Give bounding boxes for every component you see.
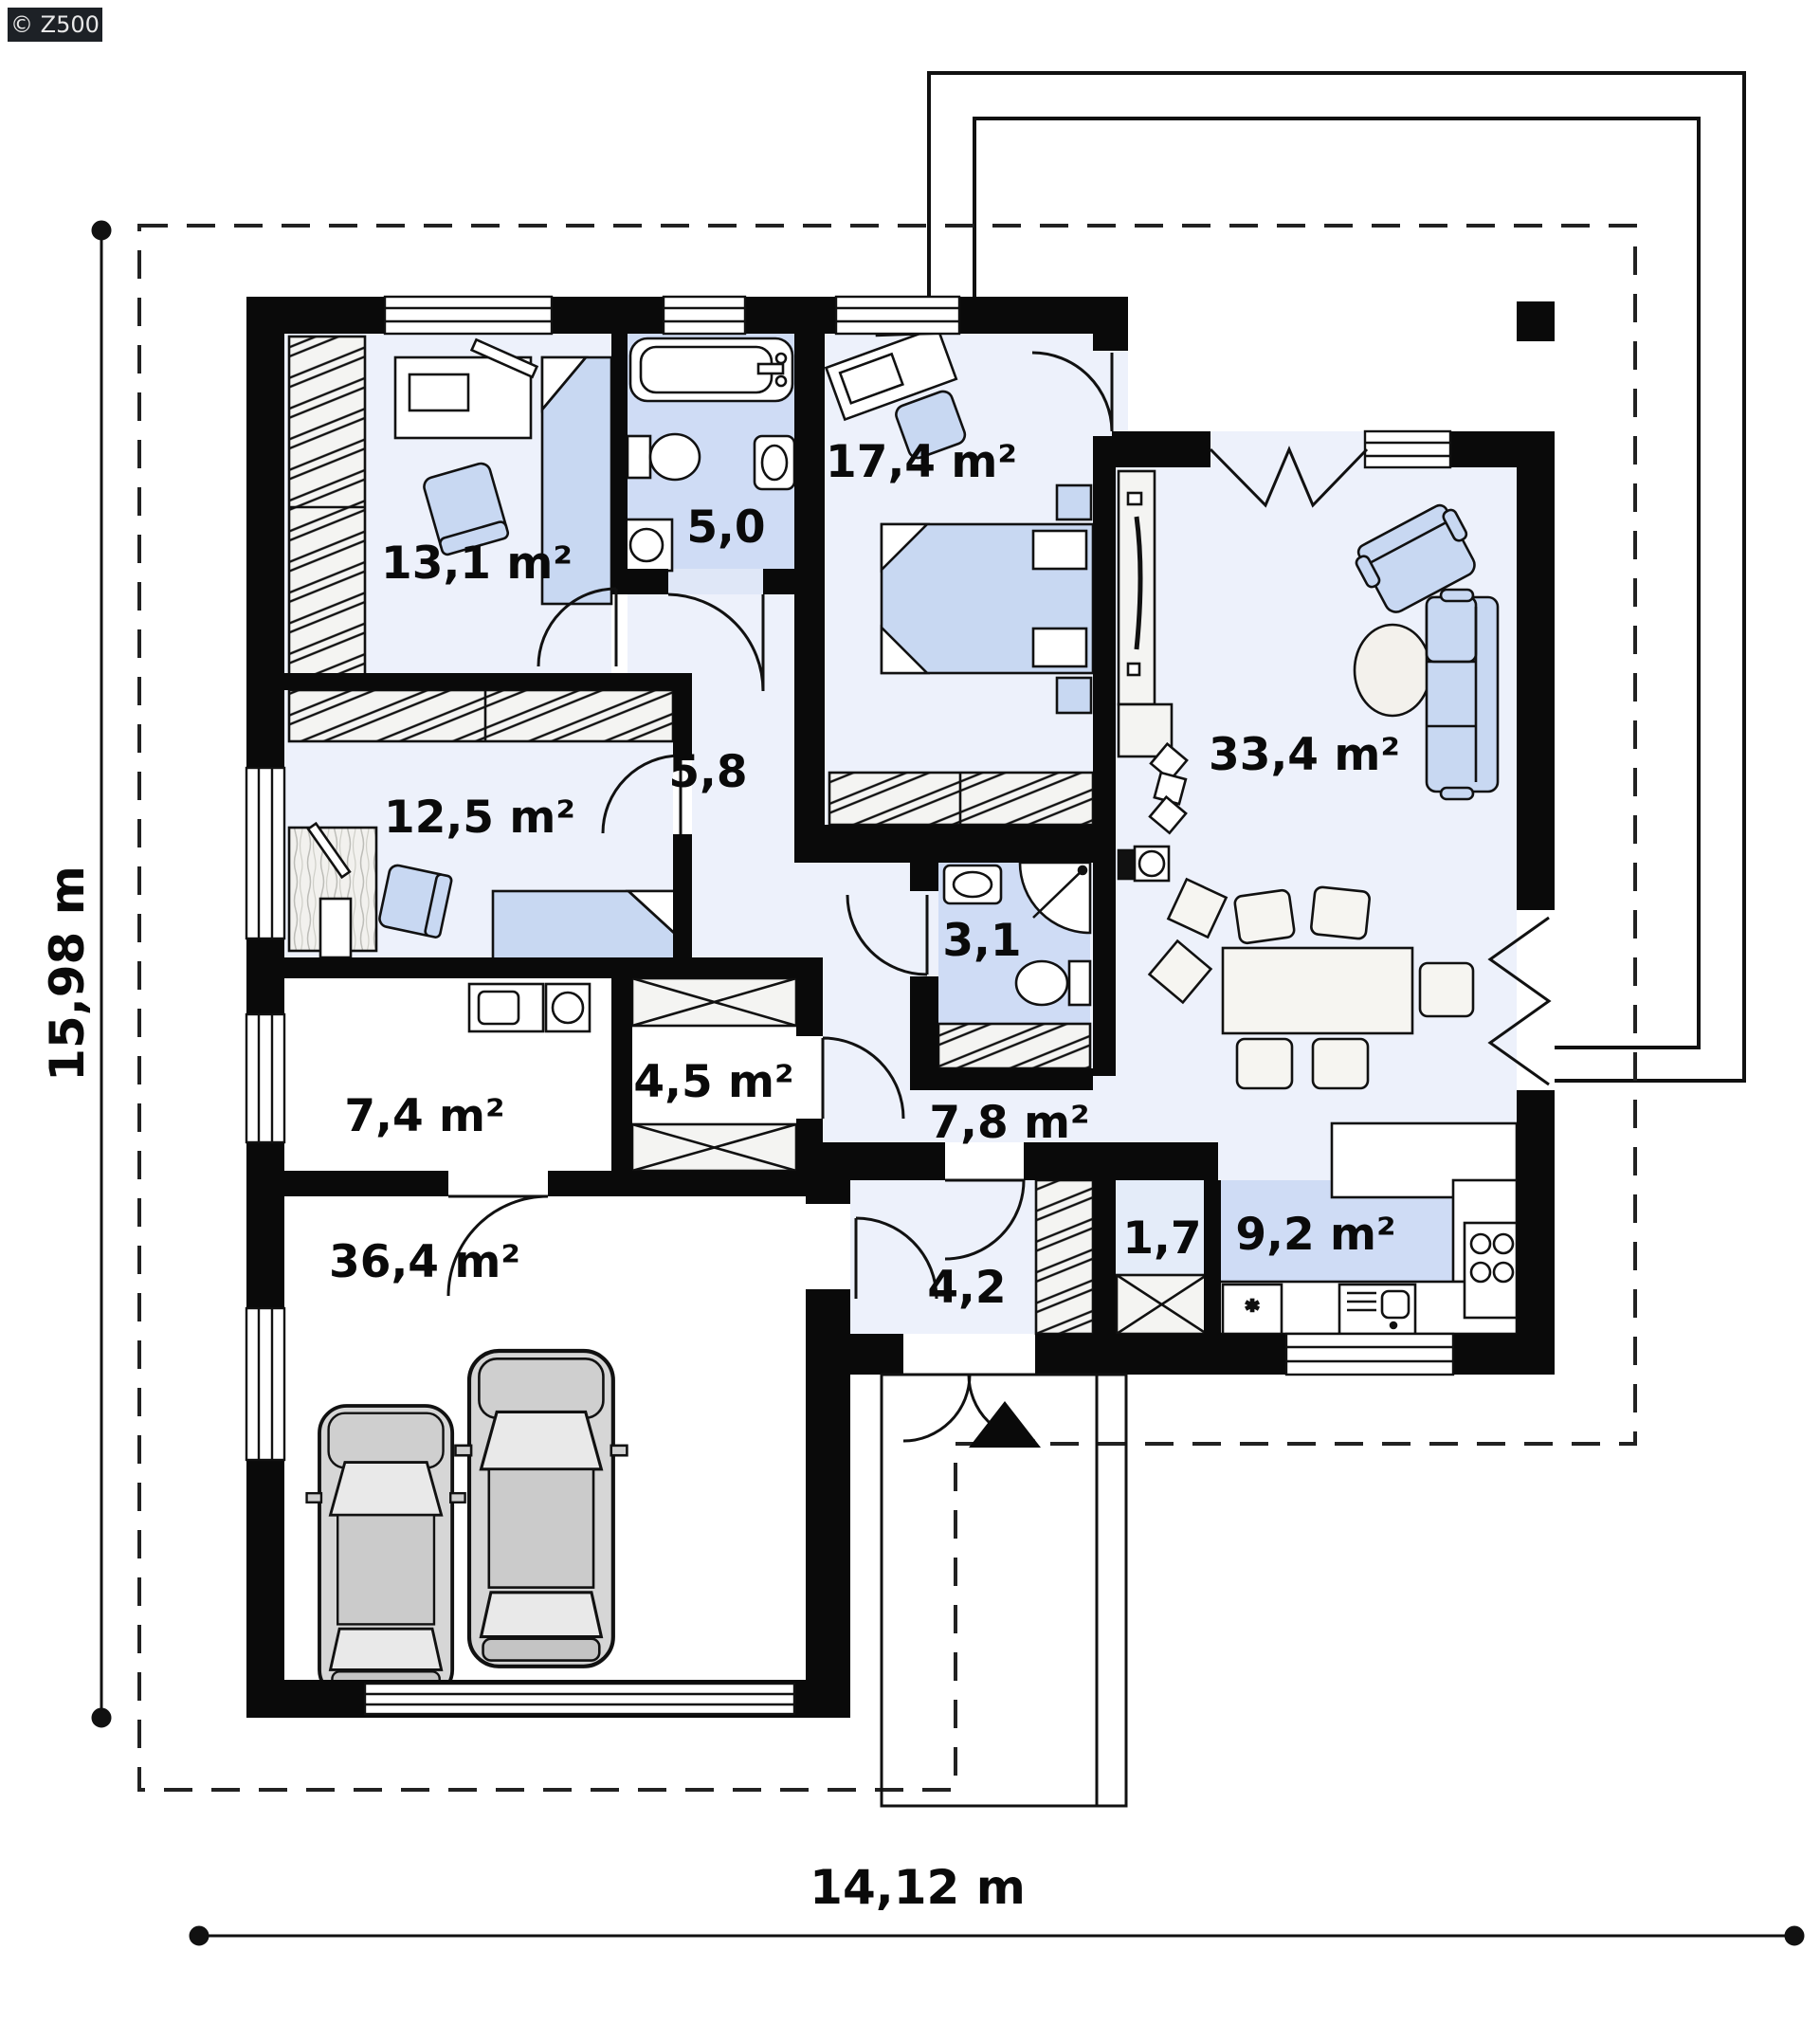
bedroom2-wardrobe <box>829 773 1093 825</box>
toilet-icon <box>628 434 700 480</box>
room-label-pantry: 1,7 <box>1122 1212 1201 1265</box>
coffee-table-icon <box>1355 625 1430 716</box>
stove-icon <box>1119 847 1169 881</box>
dimension-left <box>93 222 110 1726</box>
room-label-bedroom1: 13,1 m² <box>381 538 573 590</box>
window-bedroom2 <box>836 297 959 334</box>
door-front-left <box>903 1375 970 1441</box>
pantry-cabinet <box>1117 1275 1207 1334</box>
floor-plan-canvas: * <box>0 0 1820 2041</box>
window-bedroom1 <box>385 297 552 334</box>
room-label-garage: 36,4 m² <box>329 1236 520 1288</box>
dimension-label-left: 15,98 m <box>40 866 95 1082</box>
room-label-kitchen: 9,2 m² <box>1235 1209 1395 1261</box>
room-label-bedroom3: 12,5 m² <box>384 792 575 844</box>
watermark-text: © Z500 <box>10 11 100 38</box>
window-living <box>1365 431 1450 467</box>
bedroom3-bed <box>493 891 685 964</box>
wc-toilet-icon <box>1016 961 1090 1005</box>
room-label-bath: 5,0 <box>686 501 765 554</box>
room-label-wc: 3,1 <box>942 915 1021 967</box>
room-bath-door-strip <box>668 569 763 594</box>
bedroom3-wardrobe <box>289 690 673 741</box>
utility-boiler <box>469 984 590 1031</box>
room-hall-floor-c <box>794 863 825 957</box>
room-corridor-passage <box>1093 1076 1116 1142</box>
dimension-label-bottom: 14,12 m <box>810 1860 1026 1915</box>
corridor-closet <box>938 1024 1090 1068</box>
garage-door <box>365 1684 794 1714</box>
entrance-arrow <box>969 1401 1041 1448</box>
watermark-badge: © Z500 <box>8 8 102 42</box>
washer-icon <box>621 519 672 571</box>
bathtub-icon <box>630 338 792 401</box>
window-kitchen <box>1286 1334 1453 1375</box>
bedroom1-wardrobe <box>289 337 365 675</box>
room-hall-floor-b <box>692 673 794 957</box>
sink-icon <box>755 436 794 489</box>
room-label-living: 33,4 m² <box>1209 729 1400 781</box>
wc-sink-icon <box>944 866 1001 903</box>
room-label-wardrobe: 4,5 m² <box>633 1056 793 1108</box>
room-label-hall: 5,8 <box>668 746 747 798</box>
room-label-bedroom2: 17,4 m² <box>826 436 1017 488</box>
room-label-corridor: 7,8 m² <box>929 1097 1089 1149</box>
svg-text:*: * <box>1246 1296 1259 1324</box>
floor-plan: * <box>0 0 1820 2041</box>
bedroom3-desk <box>289 824 376 957</box>
window-bath <box>664 297 745 334</box>
dimension-bottom <box>191 1927 1803 1944</box>
bedroom3-chair <box>378 864 452 938</box>
sofa-icon <box>1427 590 1498 799</box>
room-label-utility: 7,4 m² <box>344 1090 504 1142</box>
window-utility <box>246 1014 284 1142</box>
entry-closet <box>1036 1180 1093 1334</box>
room-label-entry: 4,2 <box>927 1262 1006 1314</box>
window-garage <box>246 1308 284 1460</box>
window-bedroom3 <box>246 768 284 938</box>
